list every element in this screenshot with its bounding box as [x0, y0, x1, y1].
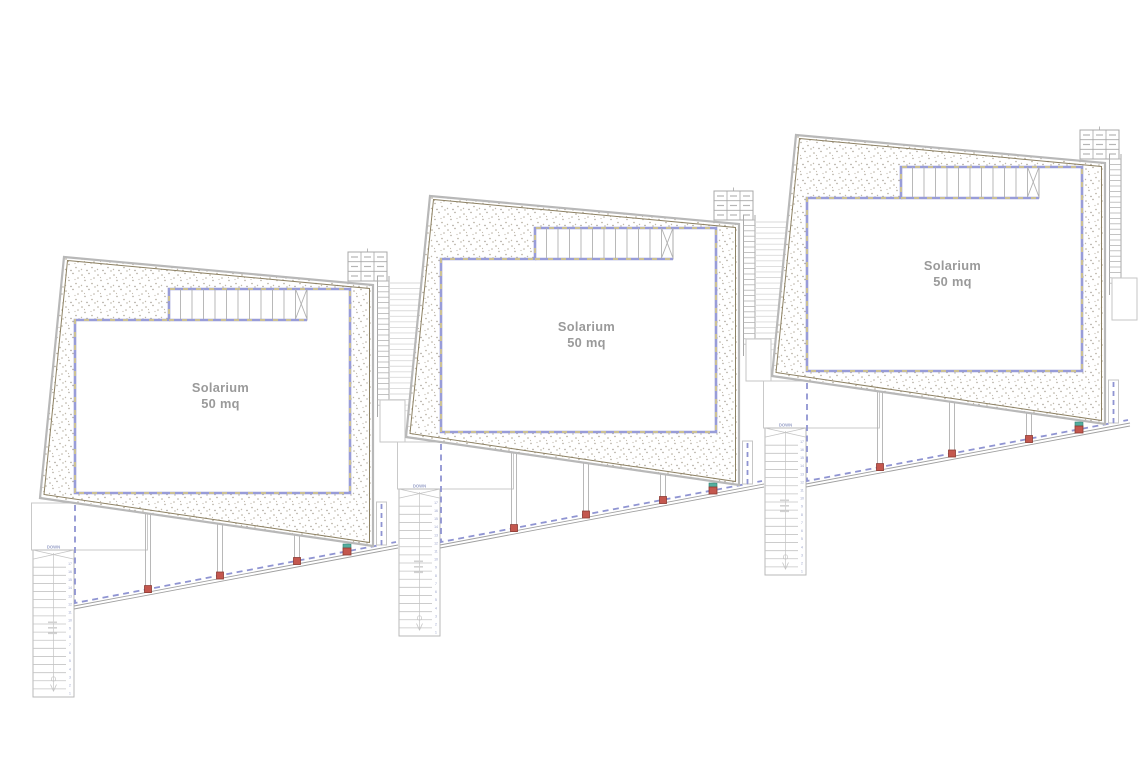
rooftop-grid-box [1080, 127, 1119, 160]
solarium-label-line2: 50 mq [933, 274, 972, 289]
rooftop-grid-box [714, 188, 753, 221]
solarium-label-line1: Solarium [558, 319, 615, 334]
post-base-marker [294, 558, 301, 565]
step-number: 11 [434, 549, 438, 553]
level-annotation-mark [780, 505, 789, 507]
external-staircase: 1234567891011121314151617DOWN [33, 544, 74, 697]
level-annotation-mark [414, 572, 423, 574]
post-base-marker [1026, 436, 1033, 443]
step-number: 15 [434, 517, 438, 521]
step-number: 3 [69, 675, 71, 679]
floor-plan-canvas: 1234567891011121314151617DOWNSolarium50 … [0, 0, 1140, 760]
walkway-edge [74, 548, 398, 609]
solarium-label-line1: Solarium [192, 380, 249, 395]
step-number: 7 [435, 582, 437, 586]
step-number: 10 [800, 497, 804, 501]
support-post [660, 471, 667, 503]
post-base-marker [877, 464, 884, 471]
solarium-label-line1: Solarium [924, 258, 981, 273]
ladder-base-box [380, 400, 405, 442]
step-number: 8 [801, 513, 803, 517]
step-number: 1 [69, 692, 71, 696]
level-annotation-mark [48, 622, 57, 624]
support-post [583, 460, 590, 518]
step-number: 12 [68, 602, 72, 606]
walkway-edge [440, 487, 764, 548]
step-number: 6 [69, 651, 71, 655]
step-number: 10 [434, 558, 438, 562]
ladder-base-box [746, 339, 771, 381]
step-number: 12 [434, 541, 438, 545]
corner-marker-teal [1075, 422, 1083, 426]
side-ladder [1110, 154, 1122, 295]
corner-marker-teal [709, 483, 717, 487]
step-number: 16 [434, 509, 438, 513]
rooftop-grid-box [348, 249, 387, 282]
side-ladder [378, 276, 390, 417]
down-label: DOWN [47, 544, 60, 549]
unit-plan-unit-1: 1234567891011121314151617DOWNSolarium50 … [32, 249, 428, 698]
step-number: 17 [68, 562, 72, 566]
post-base-marker [217, 572, 224, 579]
side-ladder [744, 215, 756, 356]
step-number: 17 [800, 440, 804, 444]
step-number: 14 [800, 464, 804, 468]
step-number: 16 [800, 448, 804, 452]
corner-marker-red [1075, 426, 1083, 433]
level-annotation-mark [780, 511, 789, 513]
step-number: 2 [801, 561, 803, 565]
step-number: 10 [68, 619, 72, 623]
step-number: 5 [435, 598, 437, 602]
corner-marker-red [709, 487, 717, 494]
down-label: DOWN [413, 483, 426, 488]
step-number: 13 [434, 533, 438, 537]
step-number: 9 [801, 505, 803, 509]
unit-plan-unit-2: 1234567891011121314151617DOWNSolarium50 … [398, 188, 794, 637]
step-number: 15 [68, 578, 72, 582]
step-number: 15 [800, 456, 804, 460]
corner-marker-teal [343, 544, 351, 548]
post-base-marker [511, 525, 518, 532]
post-base-marker [583, 511, 590, 518]
step-number: 4 [435, 606, 437, 610]
unit-plan-unit-3: 1234567891011121314151617DOWNSolarium50 … [764, 127, 1138, 576]
step-number: 2 [69, 683, 71, 687]
down-label: DOWN [779, 422, 792, 427]
step-number: 6 [435, 590, 437, 594]
step-number: 8 [69, 635, 71, 639]
step-number: 8 [435, 574, 437, 578]
step-number: 3 [435, 614, 437, 618]
step-number: 14 [434, 525, 438, 529]
step-number: 13 [68, 594, 72, 598]
level-annotation-mark [414, 566, 423, 568]
step-number: 11 [68, 610, 72, 614]
level-annotation-mark [48, 627, 57, 629]
post-base-marker [145, 586, 152, 593]
step-number: 4 [69, 667, 71, 671]
corner-marker-red [343, 548, 351, 555]
step-number: 16 [68, 570, 72, 574]
post-base-marker [660, 497, 667, 504]
step-number: 5 [801, 537, 803, 541]
step-number: 11 [800, 488, 804, 492]
support-post [1026, 410, 1033, 442]
external-staircase: 1234567891011121314151617DOWN [765, 422, 806, 575]
step-number: 4 [801, 545, 803, 549]
step-number: 13 [800, 472, 804, 476]
support-post [217, 521, 224, 579]
step-number: 1 [435, 631, 437, 635]
post-base-marker [949, 450, 956, 457]
solarium-label-line2: 50 mq [567, 335, 606, 350]
floor-plan-page: 1234567891011121314151617DOWNSolarium50 … [0, 0, 1140, 760]
step-number: 3 [801, 553, 803, 557]
step-number: 1 [801, 570, 803, 574]
support-post [949, 399, 956, 457]
support-post [294, 532, 301, 564]
level-annotation-mark [780, 500, 789, 502]
walkway-edge [806, 426, 1130, 487]
step-number: 6 [801, 529, 803, 533]
step-number: 5 [69, 659, 71, 663]
step-number: 2 [435, 622, 437, 626]
level-annotation-mark [48, 633, 57, 635]
step-number: 7 [801, 521, 803, 525]
external-staircase: 1234567891011121314151617DOWN [399, 483, 440, 636]
step-number: 7 [69, 643, 71, 647]
step-number: 9 [435, 566, 437, 570]
level-annotation-mark [414, 561, 423, 563]
step-number: 17 [434, 501, 438, 505]
step-number: 9 [69, 627, 71, 631]
step-number: 12 [800, 480, 804, 484]
units-group: 1234567891011121314151617DOWNSolarium50 … [32, 127, 1138, 698]
solarium-label-line2: 50 mq [201, 396, 240, 411]
step-number: 14 [68, 586, 72, 590]
ladder-base-box [1112, 278, 1137, 320]
